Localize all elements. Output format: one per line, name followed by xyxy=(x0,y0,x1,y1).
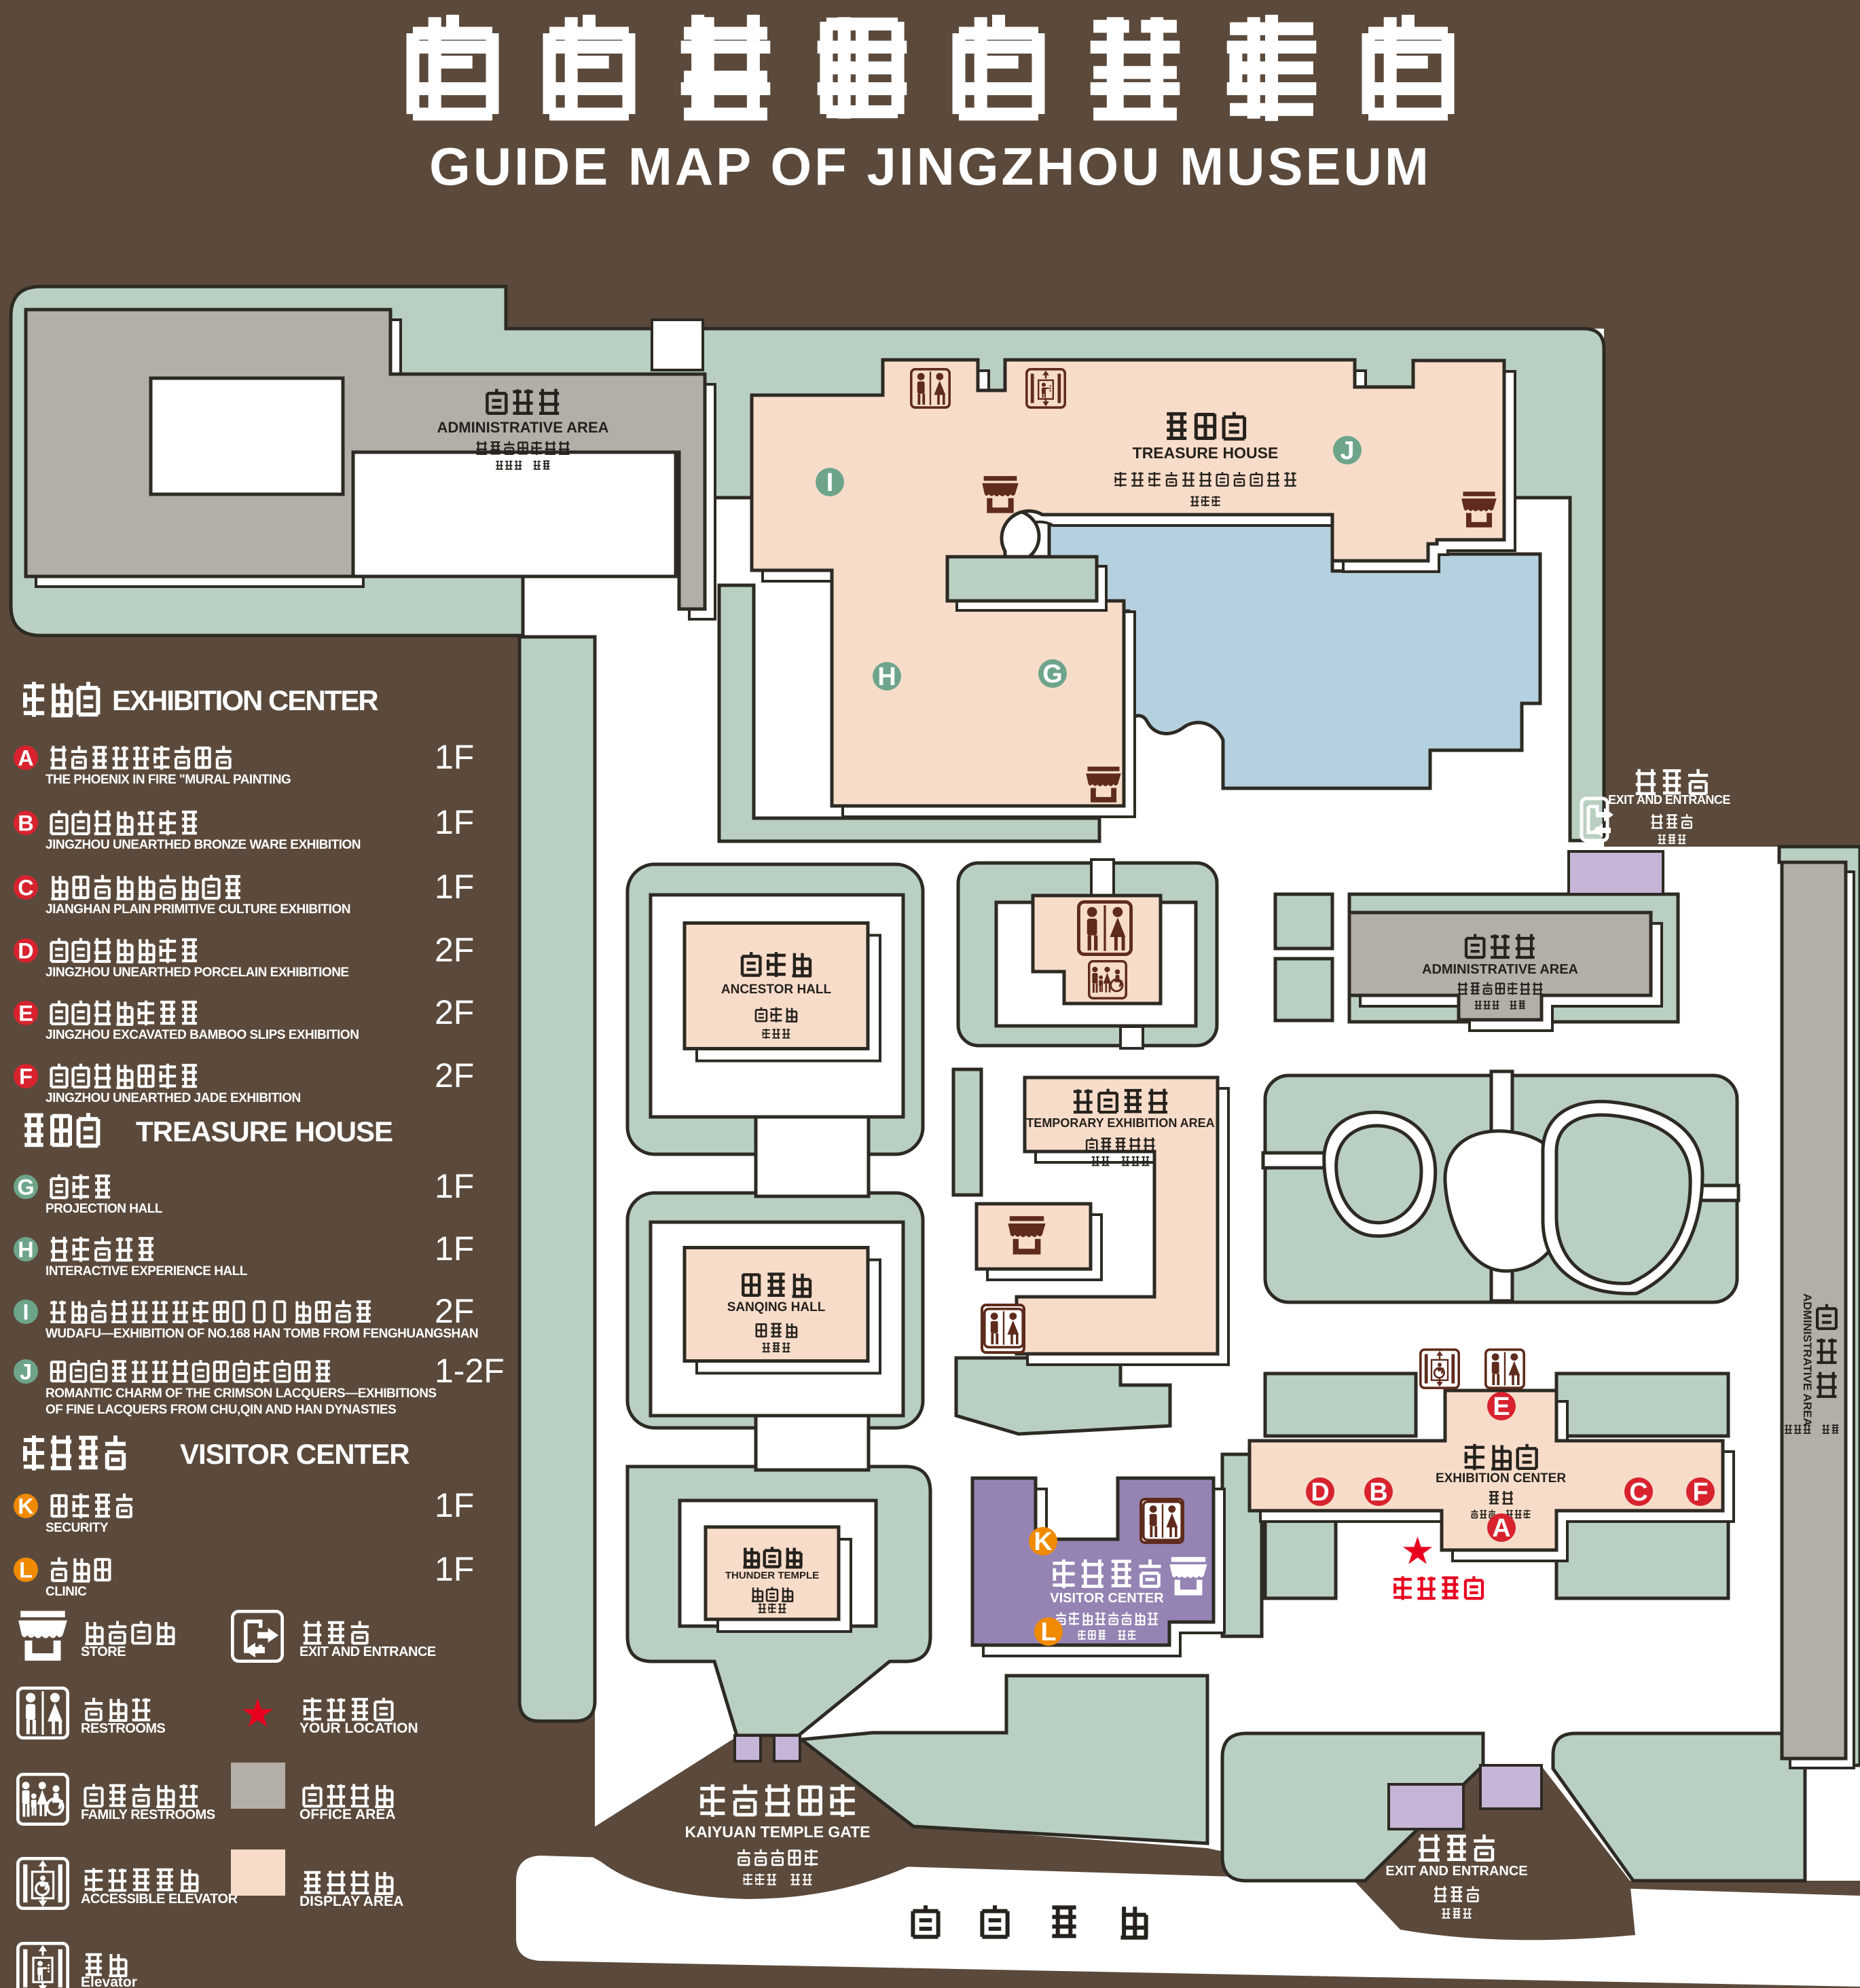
svg-text:INTERACTIVE EXPERIENCE HALL: INTERACTIVE EXPERIENCE HALL xyxy=(45,1264,248,1278)
svg-text:ROMANTIC CHARM OF THE CRIMSON: ROMANTIC CHARM OF THE CRIMSON LACQUERS—E… xyxy=(45,1386,437,1401)
svg-text:C: C xyxy=(1629,1478,1647,1507)
svg-text:JINGZHOU EXCAVATED BAMBOO SLIP: JINGZHOU EXCAVATED BAMBOO SLIPS EXHIBITI… xyxy=(45,1028,359,1042)
svg-text:THUNDER TEMPLE: THUNDER TEMPLE xyxy=(725,1570,819,1581)
svg-text:1F: 1F xyxy=(435,1167,474,1205)
svg-text:FAMILY RESTROOMS: FAMILY RESTROOMS xyxy=(81,1807,215,1822)
svg-text:WUDAFU—EXHIBITION OF NO.168 HA: WUDAFU—EXHIBITION OF NO.168 HAN TOMB FRO… xyxy=(45,1327,478,1341)
svg-text:PROJECTION HALL: PROJECTION HALL xyxy=(45,1202,163,1216)
svg-text:2F: 2F xyxy=(435,1056,474,1094)
svg-text:K: K xyxy=(1034,1528,1052,1556)
svg-text:CLINIC: CLINIC xyxy=(45,1585,87,1599)
svg-text:E: E xyxy=(18,1001,33,1025)
svg-text:L: L xyxy=(19,1558,33,1582)
svg-text:ADMINISTRATIVE AREA: ADMINISTRATIVE AREA xyxy=(1422,962,1578,977)
svg-text:ADMINISTRATIVE AREA: ADMINISTRATIVE AREA xyxy=(437,419,609,436)
svg-text:TREASURE HOUSE: TREASURE HOUSE xyxy=(136,1116,393,1147)
svg-text:JINGZHOU UNEARTHED BRONZE WARE: JINGZHOU UNEARTHED BRONZE WARE EXHIBITIO… xyxy=(45,838,361,852)
svg-text:F: F xyxy=(1692,1478,1708,1507)
svg-text:EXHIBITION CENTER: EXHIBITION CENTER xyxy=(1436,1471,1566,1486)
svg-text:2F: 2F xyxy=(435,1292,474,1330)
svg-text:2F: 2F xyxy=(435,993,474,1031)
svg-text:J: J xyxy=(1340,437,1354,465)
svg-text:KAIYUAN TEMPLE GATE: KAIYUAN TEMPLE GATE xyxy=(685,1823,870,1841)
svg-text:EXIT AND ENTRANCE: EXIT AND ENTRANCE xyxy=(1608,793,1730,807)
svg-text:L: L xyxy=(1040,1618,1056,1646)
svg-text:RESTROOMS: RESTROOMS xyxy=(81,1721,166,1736)
svg-text:D: D xyxy=(1311,1478,1329,1507)
svg-text:H: H xyxy=(877,663,896,691)
svg-text:J: J xyxy=(20,1359,32,1384)
svg-text:ADMINISTRATIVE AREA: ADMINISTRATIVE AREA xyxy=(1801,1293,1814,1426)
svg-text:1F: 1F xyxy=(435,738,474,776)
svg-text:Elevator: Elevator xyxy=(81,1974,137,1988)
svg-text:K: K xyxy=(18,1494,34,1518)
svg-text:JINGZHOU UNEARTHED JADE EXHIBI: JINGZHOU UNEARTHED JADE EXHIBITION xyxy=(45,1091,301,1105)
svg-text:H: H xyxy=(18,1237,33,1262)
svg-text:OF FINE LACQUERS FROM CHU,QIN: OF FINE LACQUERS FROM CHU,QIN AND HAN DY… xyxy=(45,1403,396,1417)
svg-text:1F: 1F xyxy=(435,1230,474,1268)
svg-text:1F: 1F xyxy=(435,803,474,841)
svg-text:OFFICE AREA: OFFICE AREA xyxy=(299,1807,396,1822)
svg-text:VISITOR CENTER: VISITOR CENTER xyxy=(180,1438,409,1470)
svg-text:B: B xyxy=(18,811,33,835)
svg-text:2F: 2F xyxy=(435,931,474,969)
svg-text:JINGZHOU UNEARTHED PORCELAIN E: JINGZHOU UNEARTHED PORCELAIN EXHIBITIONE xyxy=(45,965,349,980)
svg-text:YOUR LOCATION: YOUR LOCATION xyxy=(299,1720,418,1736)
svg-text:TEMPORARY EXHIBITION AREA: TEMPORARY EXHIBITION AREA xyxy=(1026,1116,1214,1130)
svg-text:EXIT AND ENTRANCE: EXIT AND ENTRANCE xyxy=(299,1644,436,1659)
svg-text:I: I xyxy=(826,468,834,497)
svg-text:JIANGHAN PLAIN PRIMITIVE CULTU: JIANGHAN PLAIN PRIMITIVE CULTURE EXHIBIT… xyxy=(45,902,350,917)
svg-text:B: B xyxy=(1369,1478,1387,1507)
svg-text:STORE: STORE xyxy=(81,1644,126,1659)
svg-text:ANCESTOR HALL: ANCESTOR HALL xyxy=(721,982,832,997)
svg-text:E: E xyxy=(1493,1393,1510,1421)
svg-text:SECURITY: SECURITY xyxy=(45,1521,109,1535)
svg-text:I: I xyxy=(23,1300,29,1324)
svg-text:1F: 1F xyxy=(435,1550,474,1588)
svg-text:G: G xyxy=(17,1175,34,1199)
svg-text:EXHIBITION CENTER: EXHIBITION CENTER xyxy=(112,684,378,716)
svg-text:DISPLAY AREA: DISPLAY AREA xyxy=(299,1894,403,1909)
svg-text:1F: 1F xyxy=(435,868,474,906)
svg-text:TREASURE HOUSE: TREASURE HOUSE xyxy=(1133,444,1279,462)
svg-text:1-2F: 1-2F xyxy=(435,1352,505,1390)
svg-text:D: D xyxy=(18,938,33,963)
svg-text:C: C xyxy=(18,875,33,900)
svg-text:1F: 1F xyxy=(435,1486,474,1524)
svg-text:F: F xyxy=(19,1064,33,1088)
svg-text:ACCESSIBLE ELEVATOR: ACCESSIBLE ELEVATOR xyxy=(81,1892,238,1907)
svg-text:A: A xyxy=(18,745,33,770)
svg-text:A: A xyxy=(1492,1514,1510,1543)
svg-text:THE PHOENIX IN FIRE "MURAL PAI: THE PHOENIX IN FIRE "MURAL PAINTING xyxy=(45,773,291,787)
svg-text:SANQING HALL: SANQING HALL xyxy=(727,1300,826,1314)
svg-text:GUIDE MAP OF JINGZHOU MUSEUM: GUIDE MAP OF JINGZHOU MUSEUM xyxy=(429,136,1432,196)
svg-text:EXIT AND ENTRANCE: EXIT AND ENTRANCE xyxy=(1385,1864,1527,1879)
svg-text:VISITOR CENTER: VISITOR CENTER xyxy=(1050,1591,1164,1606)
svg-text:G: G xyxy=(1042,660,1062,688)
